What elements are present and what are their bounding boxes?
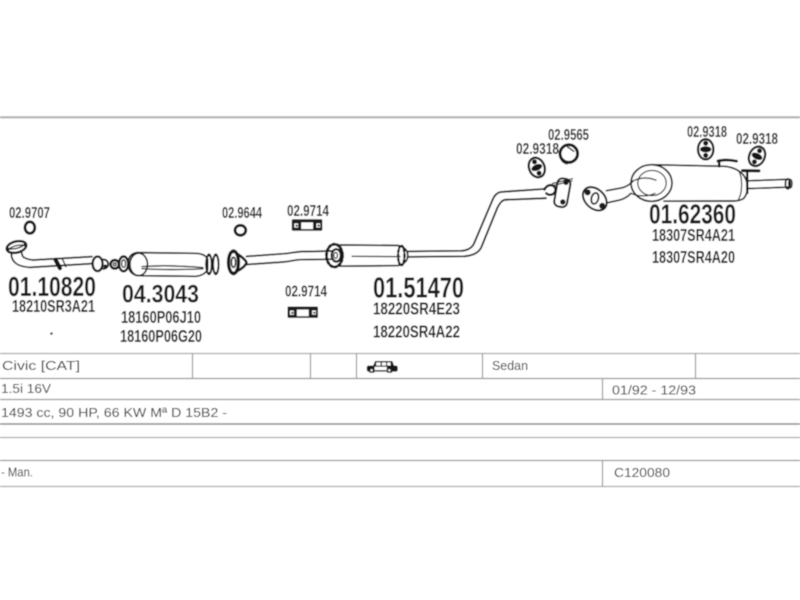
svg-text:18307SR4A21: 18307SR4A21 [652, 225, 735, 245]
svg-text:1.5i 16V: 1.5i 16V [1, 382, 52, 396]
svg-text:01/92 - 12/93: 01/92 - 12/93 [612, 384, 696, 398]
svg-text:18160P06J10: 18160P06J10 [121, 307, 201, 327]
svg-text:18160P06G20: 18160P06G20 [120, 326, 202, 346]
svg-text:02.9318: 02.9318 [516, 141, 559, 158]
svg-text:C120080: C120080 [614, 466, 670, 480]
svg-text:Civic [CAT]: Civic [CAT] [2, 359, 80, 373]
svg-text:02.9714: 02.9714 [285, 284, 327, 301]
svg-text:Sedan: Sedan [492, 359, 528, 373]
svg-text:02.9644: 02.9644 [222, 205, 262, 222]
svg-text:18220SR4E23: 18220SR4E23 [373, 299, 460, 319]
svg-text:02.9318: 02.9318 [687, 124, 727, 141]
svg-text:02.9714: 02.9714 [287, 203, 329, 220]
svg-text:18220SR4A22: 18220SR4A22 [373, 322, 460, 342]
svg-text:18210SR3A21: 18210SR3A21 [12, 296, 95, 316]
svg-text:1493 cc, 90 HP, 66 KW Mª D 15B: 1493 cc, 90 HP, 66 KW Mª D 15B2 - [1, 406, 227, 420]
svg-text:04.3043: 04.3043 [122, 281, 199, 309]
svg-text:18307SR4A20: 18307SR4A20 [652, 247, 735, 267]
svg-text:02.9318: 02.9318 [736, 131, 778, 148]
svg-text:02.9707: 02.9707 [9, 205, 50, 222]
svg-text:- Man.: - Man. [1, 466, 33, 480]
